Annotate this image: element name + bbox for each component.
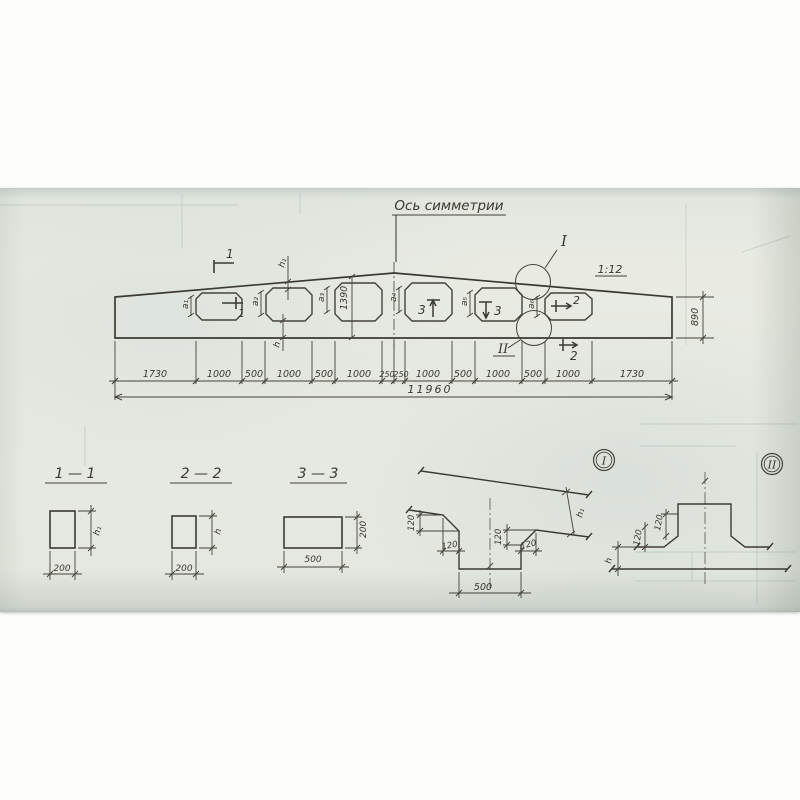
overall-dimension: 11960: [115, 383, 672, 400]
overall-dim-line: [115, 394, 672, 400]
section-3-3-width-label: 500: [304, 555, 321, 565]
seg-12: 1000: [556, 369, 580, 380]
callout-circle-1: [516, 265, 551, 300]
dim-a2: а₂: [251, 296, 261, 306]
detail-1-flange-dim: [562, 487, 575, 537]
cut-mark-1-top-label: 1: [226, 247, 234, 261]
seg-6: 250: [379, 370, 394, 379]
drawing-paper: Ось симметрии 1:12: [0, 188, 800, 612]
hole-height-labels: а₁ а₂ а₃ а₄ а₅ а₆: [181, 292, 537, 309]
seg-0: 1730: [143, 369, 167, 380]
detail-1: I 500 120 120 120 120 h₁: [406, 450, 615, 599]
seg-1: 1000: [207, 369, 231, 380]
dim-a4: а₄: [389, 292, 399, 302]
beam-elevation: [115, 273, 672, 338]
detail-2-chamfer-label-upper: 120: [653, 514, 666, 532]
flange-bottom-label: h: [272, 340, 283, 348]
hole-1: [196, 293, 242, 320]
cut-mark-2-bottom-label: 2: [570, 349, 578, 363]
detail-2-flange-line: [609, 565, 791, 572]
section-3-3-shape: [284, 517, 342, 548]
cut-mark-2-hole: [551, 300, 571, 312]
cut-mark-2-hole-label: 2: [573, 294, 580, 307]
seg-4: 500: [315, 369, 333, 380]
section-2-2-width-label: 200: [175, 564, 192, 574]
beam-outline: [115, 273, 672, 338]
cut-mark-1-hole-label: 1: [238, 307, 245, 320]
dim-a5: а₅: [460, 296, 470, 306]
detail-2-flange-label: h: [604, 557, 615, 565]
seg-8: 1000: [416, 369, 440, 380]
section-1-1: 1 — 1 200 h₁: [43, 466, 107, 580]
seg-11: 500: [524, 369, 542, 380]
section-3-3-title: 3 — 3: [298, 466, 339, 482]
section-1-1-height-label: h₁: [92, 525, 104, 537]
seg-2: 500: [245, 369, 263, 380]
section-1-1-title: 1 — 1: [55, 466, 96, 482]
detail-1-chamfer-label-left-v: 120: [407, 515, 417, 531]
seg-3: 1000: [277, 369, 301, 380]
section-2-2-height-label: h: [213, 527, 224, 535]
cut-mark-3-down-label: 3: [494, 304, 502, 318]
callout-label-2: II: [497, 342, 509, 357]
detail-1-chamfer-label-right-h: 120: [519, 538, 537, 552]
hole-4: [405, 283, 452, 321]
seg-13: 1730: [620, 369, 644, 380]
section-2-2: 2 — 2 200 h: [165, 466, 232, 580]
end-height-dim: 890: [676, 291, 714, 344]
seg-7: 250: [393, 370, 408, 379]
detail-1-flange-label: h₁: [575, 507, 587, 519]
seg-9: 500: [454, 369, 472, 380]
mid-height-label: 1390: [339, 286, 350, 310]
detail-2-badge-label: II: [767, 459, 777, 472]
cut-mark-3-up: [427, 300, 440, 317]
section-3-3: 3 — 3 500 200: [277, 466, 369, 573]
end-height-label: 890: [690, 308, 701, 326]
callout-leader-1: [545, 250, 557, 268]
seg-10: 1000: [486, 369, 510, 380]
dim-a3: а₃: [317, 292, 327, 302]
hole-2: [266, 288, 312, 321]
beam-drawing-svg: Ось симметрии 1:12: [0, 188, 800, 612]
cut-mark-1-top: [214, 260, 234, 273]
section-2-2-shape: [172, 516, 196, 548]
axis-leader-line: [392, 215, 506, 262]
detail-1-web-label: 500: [474, 582, 492, 593]
section-cut-marks: 1 1 3 3 2 2: [214, 247, 580, 363]
detail-1-badge-label: I: [601, 455, 607, 468]
section-2-2-title: 2 — 2: [181, 466, 222, 482]
slope-annotation: 1:12: [595, 263, 627, 276]
scanned-drawing-page: Ось симметрии 1:12: [0, 0, 800, 800]
callout-label-1: I: [560, 232, 568, 250]
dim-a6: а₆: [527, 299, 537, 309]
cut-mark-3-up-label: 3: [418, 303, 426, 317]
detail-1-chamfer-label-mid-v: 120: [494, 529, 504, 545]
axis-of-symmetry-label: Ось симметрии: [394, 198, 503, 214]
overall-dim-label: 11960: [408, 383, 453, 396]
section-3-3-height-label: 200: [359, 521, 369, 538]
detail-1-top-chord: [418, 467, 592, 498]
detail-2: II h 120 120: [604, 454, 791, 586]
section-1-1-shape: [50, 511, 75, 548]
detail-2-flange-dim: [612, 541, 637, 576]
scan-bleed-artifacts: [0, 194, 798, 606]
section-1-1-width-label: 200: [53, 564, 70, 574]
dim-a1: а₁: [181, 299, 191, 309]
flange-dims-elevation: h₁ h: [272, 256, 291, 351]
seg-5: 1000: [347, 369, 371, 380]
dimension-chain: 1730 1000 500 1000 500 1000 250 250 1000…: [109, 341, 678, 400]
slope-label: 1:12: [598, 263, 623, 276]
callout-circle-2: [517, 311, 552, 346]
cut-mark-3-down: [479, 302, 492, 318]
detail-2-chamfer-label-lower: 120: [632, 529, 645, 547]
detail-1-chamfer-label-left-h: 120: [441, 540, 459, 553]
